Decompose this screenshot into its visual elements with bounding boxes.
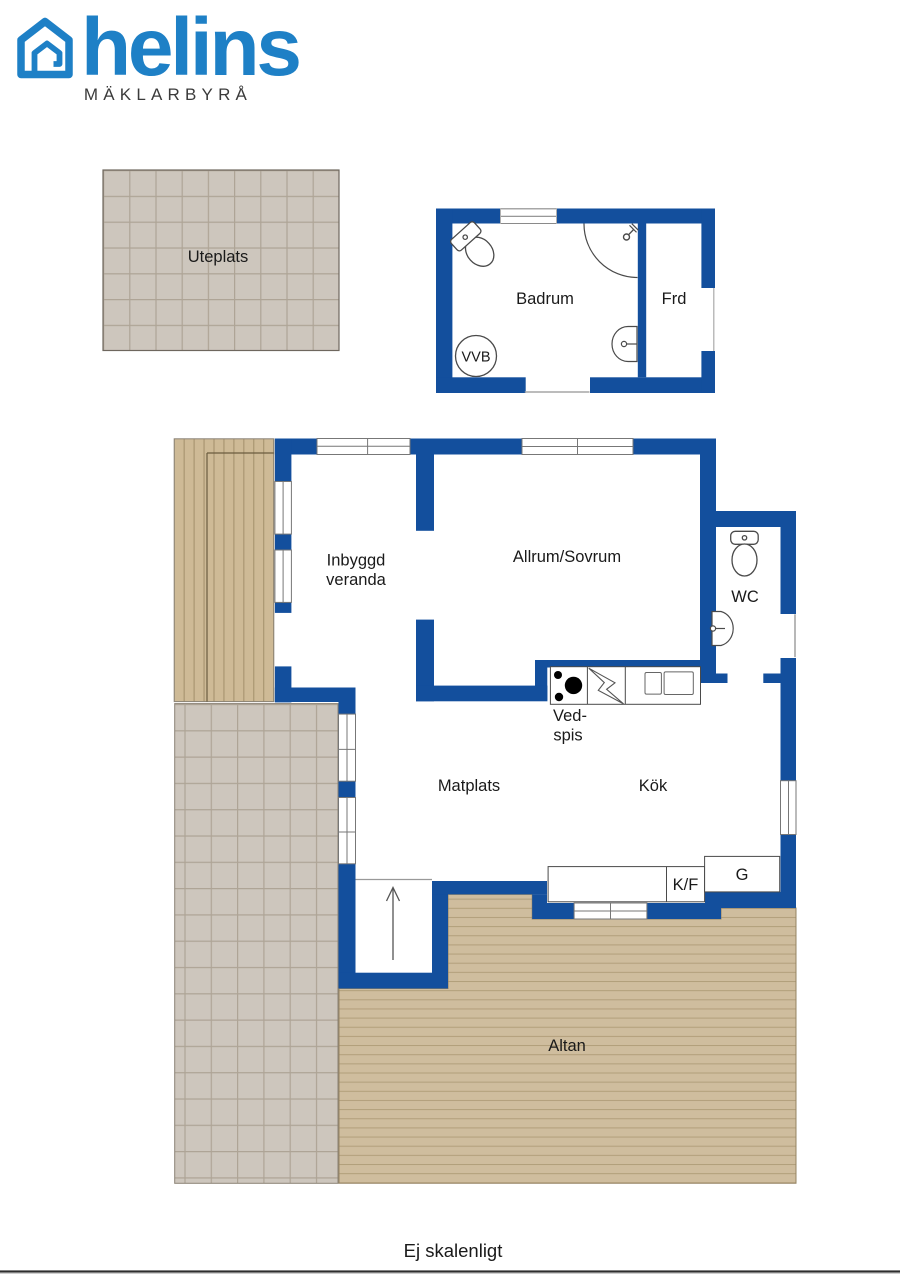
svg-text:helins: helins xyxy=(81,2,299,93)
svg-text:Ej skalenligt: Ej skalenligt xyxy=(404,1240,503,1261)
svg-text:veranda: veranda xyxy=(326,571,386,589)
svg-text:Kök: Kök xyxy=(639,777,668,795)
svg-text:spis: spis xyxy=(553,727,582,745)
svg-text:MÄKLARBYRÅ: MÄKLARBYRÅ xyxy=(84,85,252,104)
svg-text:Allrum/Sovrum: Allrum/Sovrum xyxy=(513,548,621,566)
svg-text:Inbyggd: Inbyggd xyxy=(327,552,386,570)
svg-text:G: G xyxy=(736,866,749,884)
svg-text:Uteplats: Uteplats xyxy=(188,248,249,266)
svg-text:Matplats: Matplats xyxy=(438,777,500,795)
svg-text:Frd: Frd xyxy=(662,290,687,308)
svg-text:WC: WC xyxy=(731,588,759,606)
svg-text:K/F: K/F xyxy=(673,876,699,894)
svg-text:Altan: Altan xyxy=(548,1037,586,1055)
svg-text:VVB: VVB xyxy=(461,350,490,366)
svg-text:Badrum: Badrum xyxy=(516,290,574,308)
svg-text:Ved-: Ved- xyxy=(553,707,587,725)
